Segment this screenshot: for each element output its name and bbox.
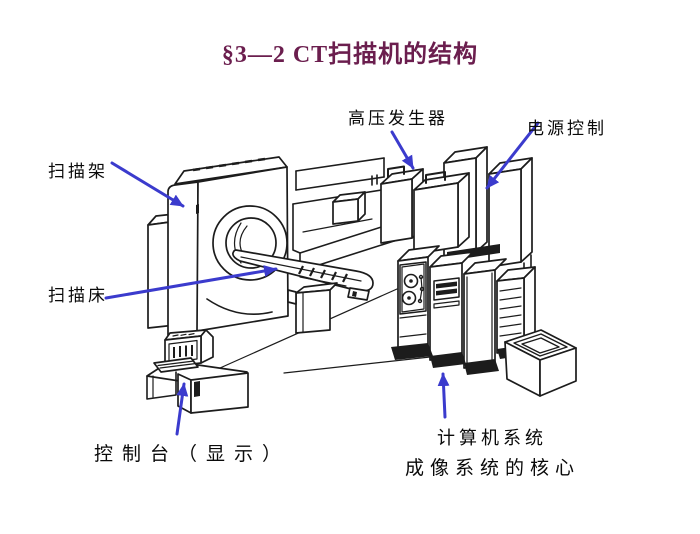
label-hv-generator: 高压发生器 — [348, 104, 448, 129]
side-table-drawing — [505, 330, 576, 396]
label-computer-system: 计算机系统 — [437, 424, 547, 450]
hv-generator-arrow — [392, 132, 413, 168]
label-scan-bed: 扫描床 — [48, 281, 108, 306]
label-console: 控制台（显示） — [94, 439, 290, 466]
label-power-control: 电源控制 — [527, 114, 607, 139]
label-gantry: 扫描架 — [48, 157, 108, 182]
hv-generator-drawing — [372, 167, 469, 255]
junction-box-drawing — [333, 192, 365, 224]
gantry-drawing — [148, 157, 288, 335]
label-computer-system-note: 成像系统的核心 — [405, 453, 580, 480]
computer-arrow — [443, 374, 445, 417]
slide-canvas: §3—2 CT扫描机的结构 — [0, 0, 700, 534]
console-drawing — [147, 330, 248, 413]
cable-rail-drawing — [296, 158, 384, 190]
gantry-arrow — [112, 163, 183, 206]
